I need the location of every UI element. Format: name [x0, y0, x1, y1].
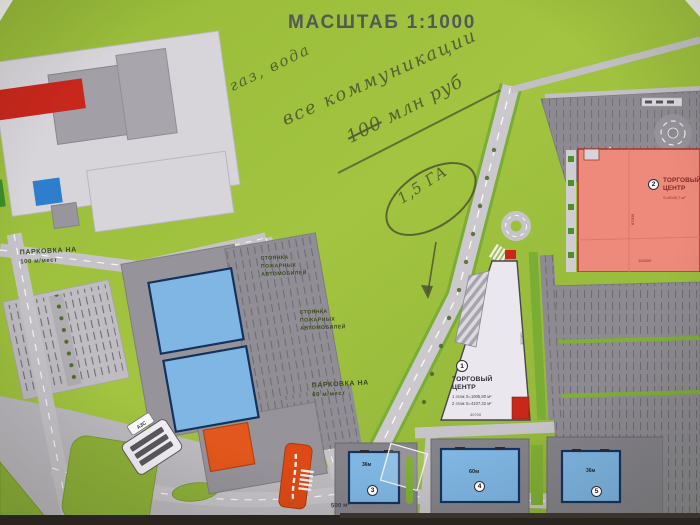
mall2-name: ТОРГОВЫЙ ЦЕНТР [663, 177, 700, 192]
mall1-floor1-area: 1 этаж S=1905,80 м² [452, 394, 492, 400]
mall2-area: S=8045,7 м² [663, 195, 685, 201]
fire-parking-label-1: СТОЯНКАПОЖАРНЫХАВТОМОБИЛЕЙ [261, 254, 307, 279]
building5-number-badge: 5 [591, 486, 602, 497]
parking-100-label: ПАРКОВКА НА 100 м/мест [20, 246, 78, 267]
building3-dim: 36м [362, 462, 371, 468]
fire-parking-label-2: СТОЯНКАПОЖАРНЫХАВТОМОБИЛЕЙ [300, 308, 346, 333]
building5-dim: 36м [586, 468, 595, 474]
building3-number-badge: 3 [367, 485, 378, 496]
building4-number-badge: 4 [474, 481, 485, 492]
photo-edge-shadow [340, 513, 700, 518]
mall1-floor2-area: 2 этаж S=4107,32 м² [452, 401, 492, 407]
scale-title: МАСШТАБ 1:1000 [288, 12, 476, 34]
site-plan-photo: АЗС 87500 10 [0, 0, 700, 525]
mall1-number-badge: 1 [456, 360, 468, 372]
mall1-name: ТОРГОВЫЙ ЦЕНТР [452, 376, 514, 392]
building4-dim: 60м [469, 469, 479, 475]
mall2-number-badge: 2 [648, 179, 659, 190]
area-500-label: 500 м² [331, 502, 350, 511]
parking-60-label: ПАРКОВКА НА 60 м/мест [312, 379, 370, 400]
